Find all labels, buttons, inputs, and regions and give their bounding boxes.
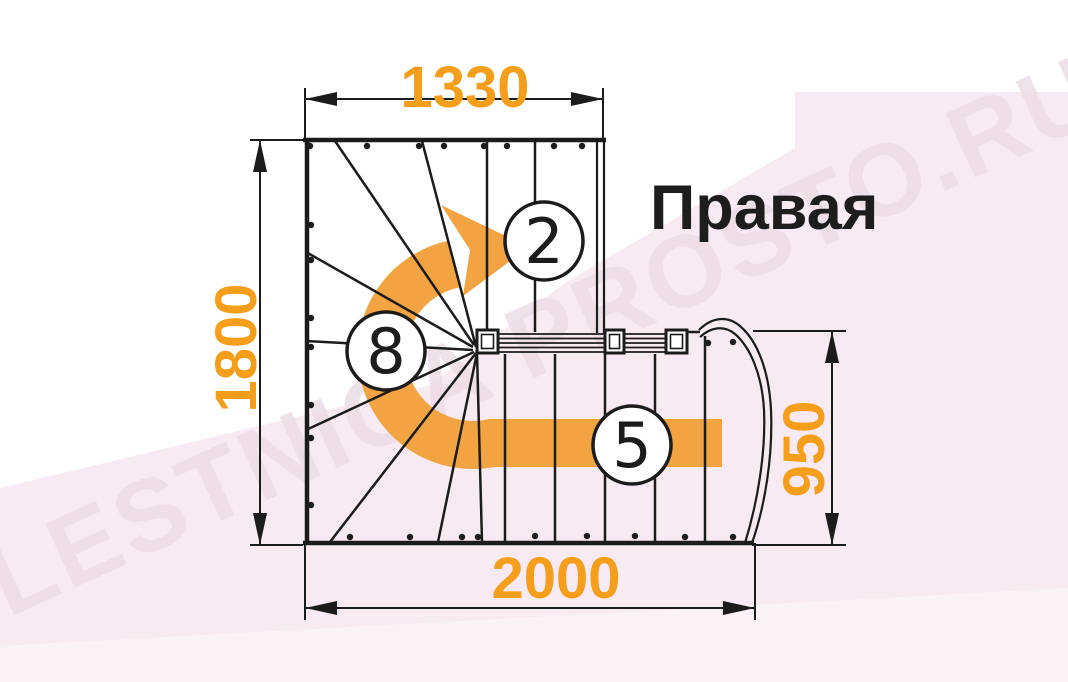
page-title: Правая [650,173,879,243]
staircase-plan-page: LESTNICA PROSTO.RU [0,0,1068,682]
rail-post [666,330,687,353]
rail-post [605,330,624,353]
dim-arrowhead-top [253,140,267,172]
dimension-top: 1330 [305,55,603,138]
dim-arrowhead-right [571,92,603,106]
dimension-bottom-value: 2000 [491,546,620,611]
dimension-right-value: 950 [772,401,837,498]
staircase-plan-canvas: LESTNICA PROSTO.RU [0,0,1068,682]
dimension-left-value: 1800 [204,283,269,412]
step-count-upper-flight: 2 [505,202,583,280]
step-count-winder: 8 [347,312,425,390]
badge-value: 8 [366,315,405,388]
dimension-top-value: 1330 [400,55,529,120]
dim-arrowhead-left [305,92,337,106]
badge-value: 2 [524,205,563,278]
step-count-lower-flight: 5 [593,406,671,484]
rail-post [477,330,498,353]
badge-value: 5 [612,409,651,482]
